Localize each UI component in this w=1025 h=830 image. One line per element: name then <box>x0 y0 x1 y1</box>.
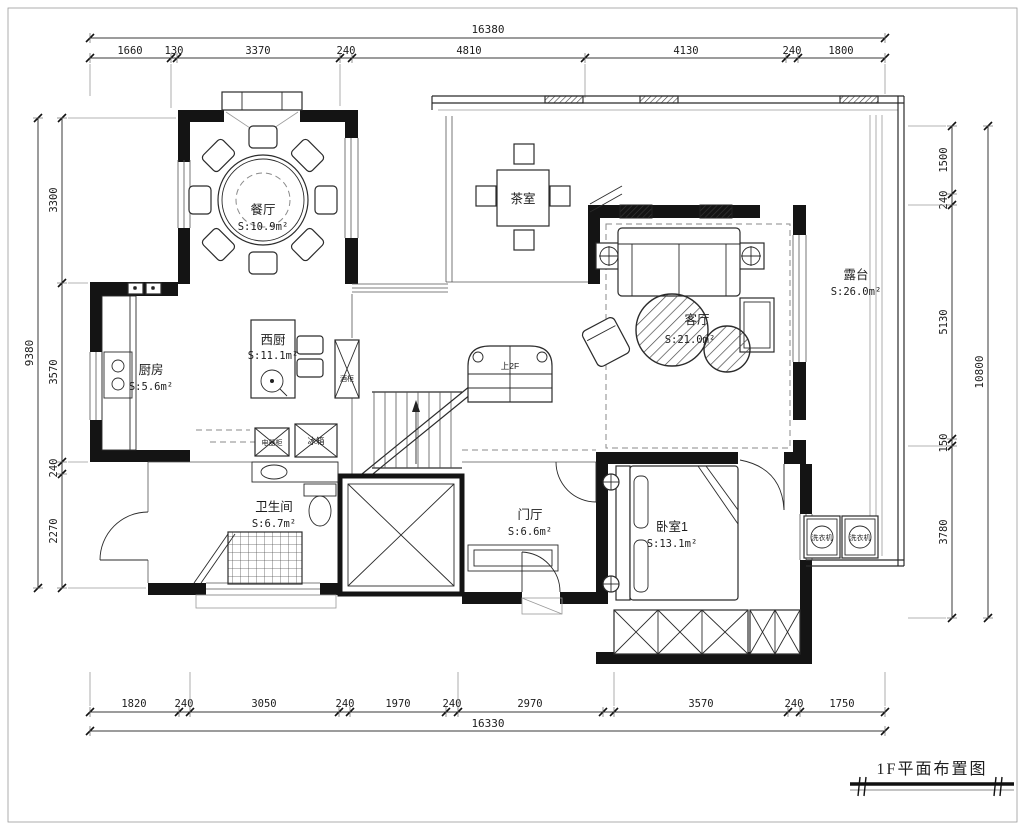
top-dimension-chain: 16380 1660 130 3370 240 4810 4130 240 18… <box>86 23 889 108</box>
dim-left-total: 9380 <box>23 340 36 367</box>
kitchen-counter <box>102 296 136 450</box>
washer-right-label: 洗衣机 <box>850 533 871 542</box>
appliance-cabinet-label: 电器柜 <box>262 438 283 447</box>
laundry: 洗衣机 洗衣机 <box>804 516 878 558</box>
dim-bot-3: 240 <box>336 698 355 710</box>
shower <box>228 532 302 584</box>
dim-top-3: 240 <box>337 45 356 57</box>
kitchen: 厨房 S:5.6m² <box>102 296 264 450</box>
dim-top-4: 4810 <box>456 45 481 57</box>
stair-direction-arrow <box>412 400 420 412</box>
left-dimension-chain: 9380 3300 3570 240 2270 <box>23 114 176 592</box>
bathroom-label: 卫生间 <box>255 500 293 514</box>
sofa <box>618 228 740 296</box>
dining-room-area: S:10.9m² <box>238 221 289 233</box>
dim-bot-6: 2970 <box>517 698 542 710</box>
dim-bot-9: 1750 <box>829 698 854 710</box>
dim-right-4: 3780 <box>938 519 950 544</box>
dim-right-3: 150 <box>938 434 950 453</box>
living-room-area: S:21.0m² <box>665 334 716 346</box>
floorplan-sheet: 16380 1660 130 3370 240 4810 4130 240 18… <box>0 0 1025 830</box>
toilet <box>304 484 336 526</box>
elevator-shaft <box>340 476 462 594</box>
dim-bottom-total: 16330 <box>471 717 504 730</box>
right-dimension-chain: 1500 240 5130 150 3780 10800 <box>908 122 993 622</box>
dining-room-label: 餐厅 <box>250 202 275 217</box>
dim-top-2: 3370 <box>245 45 270 57</box>
dim-bot-5: 240 <box>443 698 462 710</box>
stair-landing-seat: 上2F <box>468 346 552 402</box>
dim-bot-0: 1820 <box>121 698 146 710</box>
bathroom: 卫生间 S:6.7m² <box>100 462 338 584</box>
west-kitchen-area: S:11.1m² <box>248 350 299 362</box>
wardrobe <box>614 610 800 654</box>
bottom-dimension-chain: 1820 240 3050 240 1970 240 2970 3570 240… <box>86 672 889 736</box>
bedroom1-label: 卧室1 <box>656 519 688 534</box>
dim-bot-2: 3050 <box>251 698 276 710</box>
dim-top-total: 16380 <box>471 23 504 36</box>
sheet-frame <box>8 8 1017 822</box>
dim-right-2: 5130 <box>938 309 950 334</box>
wine-cabinet-label: 酒柜 <box>340 374 354 383</box>
vanity <box>252 462 338 482</box>
foyer-label: 门厅 <box>517 507 542 522</box>
tea-room-label: 茶室 <box>510 191 535 206</box>
dim-left-3: 2270 <box>48 518 60 543</box>
dim-top-0: 1660 <box>117 45 142 57</box>
dim-top-7: 1800 <box>828 45 853 57</box>
bathroom-door-arc <box>100 512 148 560</box>
terrace-label: 露台 <box>843 267 868 282</box>
terrace: 露台 S:26.0m² <box>831 267 882 298</box>
dim-top-1: 130 <box>165 45 184 57</box>
stairs-up-label: 上2F <box>501 361 519 371</box>
living-room-label: 客厅 <box>684 312 709 327</box>
dim-left-2: 240 <box>48 459 60 478</box>
title-block: 1F平面布置图 <box>850 760 1014 796</box>
dim-top-5: 4130 <box>673 45 698 57</box>
entry-step <box>468 545 558 571</box>
foyer-area: S:6.6m² <box>508 526 552 538</box>
washer-left-label: 洗衣机 <box>812 533 833 542</box>
terrace-area: S:26.0m² <box>831 286 882 298</box>
dim-bot-4: 1970 <box>385 698 410 710</box>
bathroom-area: S:6.7m² <box>252 518 296 530</box>
living-room: 客厅 S:21.0m² <box>462 224 790 450</box>
drawing-title: 1F平面布置图 <box>877 760 988 778</box>
kitchen-area: S:5.6m² <box>129 381 173 393</box>
bedroom1-area: S:13.1m² <box>647 538 698 550</box>
column-symbol-right <box>738 243 764 269</box>
west-kitchen-label: 西厨 <box>260 333 285 347</box>
appliance-cabinets: 电器柜 冰箱 <box>255 424 337 457</box>
dim-top-6: 240 <box>783 45 802 57</box>
dim-bot-8: 240 <box>785 698 804 710</box>
dim-left-1: 3570 <box>48 359 60 384</box>
stairs: 上2F <box>362 346 552 478</box>
floorplan-drawing: 16380 1660 130 3370 240 4810 4130 240 18… <box>0 0 1025 830</box>
coffee-table-small <box>704 326 750 372</box>
dim-right-total: 10800 <box>973 355 986 388</box>
dim-left-0: 3300 <box>48 187 60 212</box>
fridge-label: 冰箱 <box>307 436 325 446</box>
bedroom1: 卧室1 S:13.1m² <box>603 460 800 654</box>
foyer-door-arc <box>556 462 596 502</box>
kitchen-sink <box>104 352 132 398</box>
dim-right-0: 1500 <box>938 147 950 172</box>
dim-bot-7: 3570 <box>688 698 713 710</box>
foyer: 门厅 S:6.6m² <box>462 462 596 614</box>
dim-bot-1: 240 <box>175 698 194 710</box>
coffee-table-large <box>636 294 708 366</box>
wine-cabinet: 酒柜 <box>335 340 359 398</box>
dim-right-1: 240 <box>938 191 950 210</box>
armchair <box>581 316 632 368</box>
kitchen-label: 厨房 <box>138 362 163 377</box>
